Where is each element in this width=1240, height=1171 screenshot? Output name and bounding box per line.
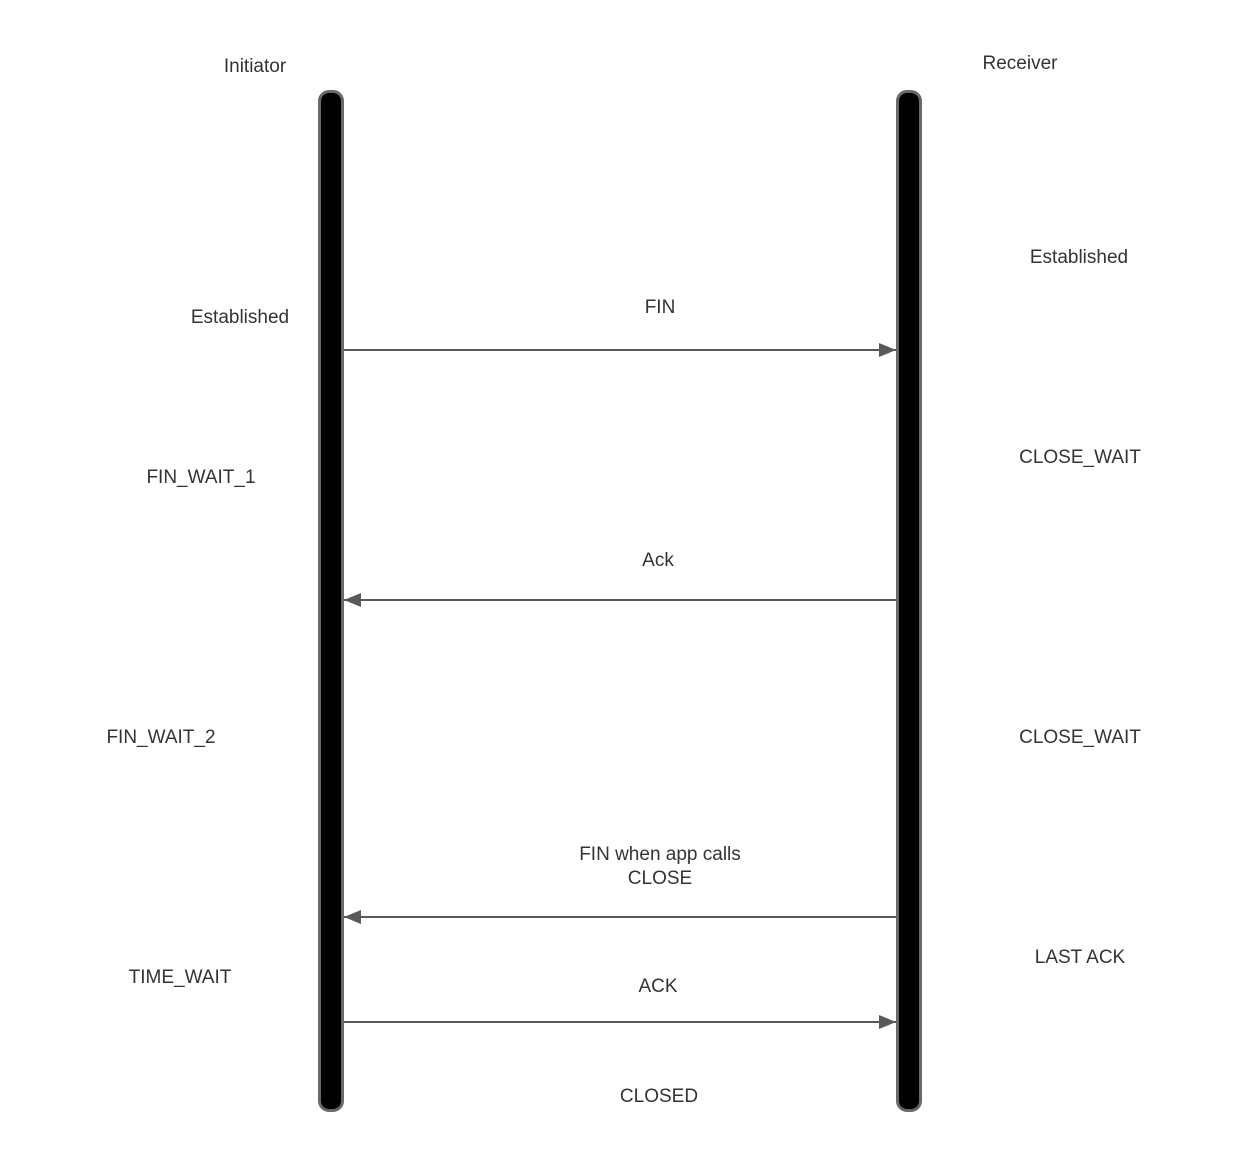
arrow-head-left-icon [344,593,361,607]
initiator-state-fin-wait-1: FIN_WAIT_1 [101,466,301,490]
message-arrow-ack [344,593,896,607]
receiver-state-close-wait-1: CLOSE_WAIT [980,446,1180,470]
message-label-line1: FIN when app calls [510,843,810,867]
message-label-line2: CLOSE [510,867,810,891]
message-arrow-fin [344,343,896,357]
arrow-shaft [344,1021,896,1023]
initiator-state-fin-wait-2: FIN_WAIT_2 [61,726,261,750]
arrow-head-left-icon [344,910,361,924]
lifeline-receiver [896,90,922,1112]
sequence-diagram: Initiator Receiver Established FIN_WAIT_… [0,0,1240,1171]
final-state-closed: CLOSED [559,1085,759,1109]
message-label-fin: FIN [510,296,810,320]
initiator-state-established: Established [140,306,340,330]
arrow-head-right-icon [879,1015,896,1029]
message-arrow-fin-close [344,910,896,924]
lifeline-initiator [318,90,344,1112]
message-label-ack-final: ACK [508,975,808,999]
actor-label-initiator: Initiator [155,55,355,79]
arrow-shaft [344,349,896,351]
receiver-state-established: Established [979,246,1179,270]
arrow-shaft [344,599,896,601]
message-arrow-ack-final [344,1015,896,1029]
initiator-state-time-wait: TIME_WAIT [80,966,280,990]
message-label-fin-close: FIN when app calls CLOSE [510,843,810,891]
actor-label-receiver: Receiver [920,52,1120,76]
arrow-shaft [344,916,896,918]
receiver-state-close-wait-2: CLOSE_WAIT [980,726,1180,750]
arrow-head-right-icon [879,343,896,357]
receiver-state-last-ack: LAST ACK [980,946,1180,970]
message-label-ack: Ack [508,549,808,573]
